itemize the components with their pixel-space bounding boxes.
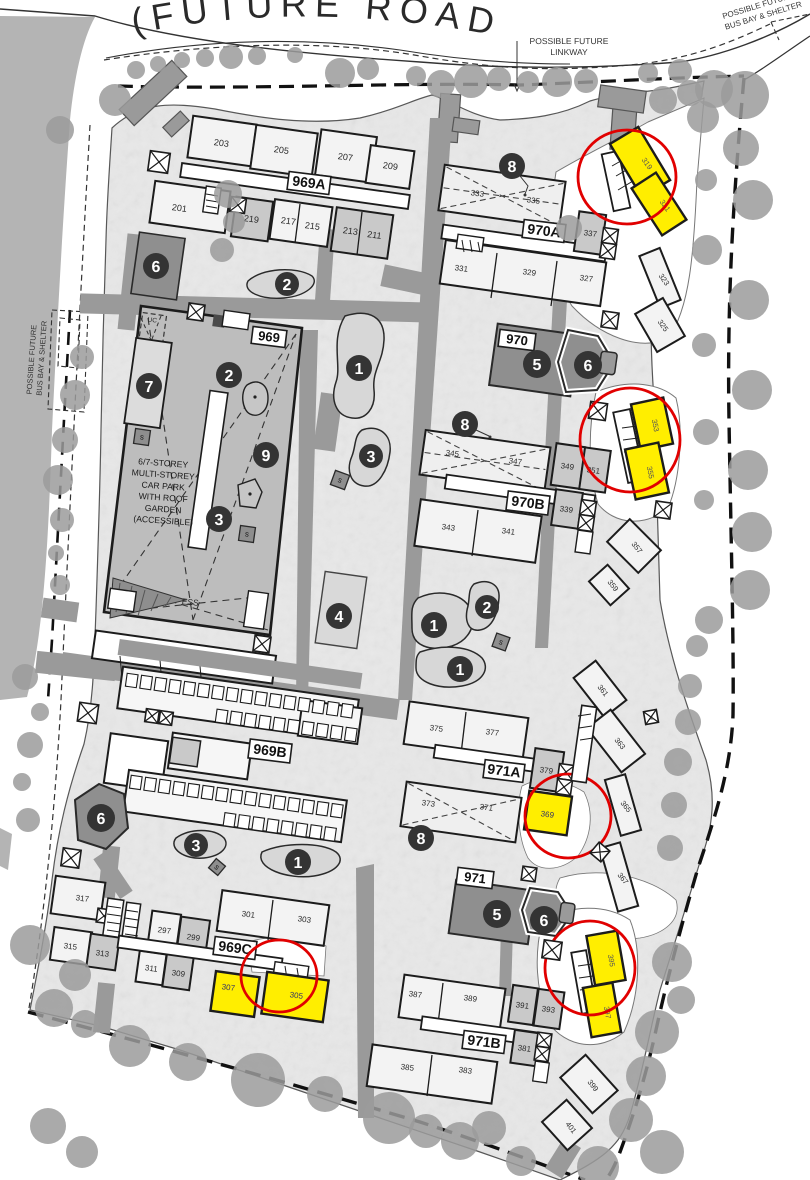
- svg-text:971: 971: [463, 869, 486, 887]
- svg-text:1: 1: [294, 855, 303, 872]
- svg-text:341: 341: [501, 526, 516, 537]
- svg-text:7: 7: [145, 379, 154, 396]
- svg-text:377: 377: [485, 727, 500, 738]
- svg-text:369: 369: [540, 809, 555, 820]
- svg-text:385: 385: [400, 1062, 415, 1073]
- svg-text:5: 5: [493, 907, 502, 924]
- svg-text:1: 1: [456, 662, 465, 679]
- svg-text:1: 1: [355, 361, 364, 378]
- svg-text:337: 337: [583, 228, 598, 239]
- svg-text:209: 209: [382, 160, 398, 172]
- svg-text:9: 9: [262, 448, 271, 465]
- svg-text:313: 313: [95, 948, 110, 959]
- svg-text:2: 2: [483, 600, 492, 617]
- svg-text:969: 969: [257, 328, 280, 346]
- svg-text:219: 219: [243, 213, 259, 225]
- svg-text:6: 6: [97, 811, 106, 828]
- svg-text:8: 8: [508, 159, 517, 176]
- svg-text:379: 379: [539, 765, 554, 776]
- svg-text:6: 6: [584, 358, 593, 375]
- svg-text:299: 299: [186, 932, 201, 943]
- svg-text:345: 345: [445, 448, 460, 459]
- svg-text:201: 201: [171, 202, 187, 214]
- svg-text:381: 381: [517, 1043, 532, 1054]
- svg-text:387: 387: [408, 989, 423, 1000]
- svg-text:UC: UC: [147, 316, 158, 324]
- svg-text:373: 373: [421, 798, 436, 809]
- svg-text:391: 391: [515, 1000, 530, 1011]
- svg-text:329: 329: [522, 267, 537, 278]
- svg-text:349: 349: [560, 461, 575, 472]
- svg-text:LINKWAY: LINKWAY: [550, 47, 588, 57]
- svg-text:213: 213: [342, 225, 358, 237]
- svg-text:393: 393: [541, 1004, 556, 1015]
- svg-text:311: 311: [144, 963, 158, 974]
- svg-text:970: 970: [505, 331, 528, 349]
- svg-text:303: 303: [297, 914, 312, 925]
- svg-text:205: 205: [273, 144, 289, 156]
- svg-text:339: 339: [559, 504, 574, 515]
- svg-text:307: 307: [221, 982, 236, 993]
- svg-text:389: 389: [463, 993, 478, 1004]
- svg-text:6: 6: [540, 913, 549, 930]
- svg-text:309: 309: [171, 968, 186, 979]
- svg-text:383: 383: [458, 1065, 473, 1076]
- svg-text:217: 217: [280, 215, 296, 227]
- svg-text:3: 3: [192, 838, 201, 855]
- svg-text:POSSIBLE FUTURE: POSSIBLE FUTURE: [530, 36, 609, 46]
- svg-text:317: 317: [75, 893, 90, 904]
- svg-text:301: 301: [241, 909, 256, 920]
- svg-text:347: 347: [508, 456, 523, 467]
- svg-text:327: 327: [579, 273, 594, 284]
- svg-text:297: 297: [157, 925, 172, 936]
- svg-text:6: 6: [152, 259, 161, 276]
- svg-text:3: 3: [215, 512, 224, 529]
- svg-text:335: 335: [526, 195, 541, 206]
- svg-text:5: 5: [533, 357, 542, 374]
- svg-text:x: x: [649, 715, 653, 722]
- svg-text:371: 371: [479, 802, 494, 813]
- svg-text:2: 2: [225, 368, 234, 385]
- svg-text:2: 2: [283, 277, 292, 294]
- svg-text:8: 8: [417, 831, 426, 848]
- svg-text:1: 1: [430, 618, 439, 635]
- svg-text:215: 215: [304, 220, 320, 232]
- svg-text:315: 315: [63, 941, 78, 952]
- svg-text:3: 3: [367, 449, 376, 466]
- svg-text:305: 305: [289, 990, 304, 1001]
- svg-text:375: 375: [429, 723, 444, 734]
- svg-text:343: 343: [441, 522, 456, 533]
- svg-text:203: 203: [213, 137, 229, 149]
- svg-text:207: 207: [337, 151, 353, 163]
- svg-text:211: 211: [367, 229, 383, 241]
- svg-text:4: 4: [335, 609, 344, 626]
- svg-text:331: 331: [454, 263, 469, 274]
- svg-text:ESS: ESS: [181, 596, 199, 608]
- svg-text:333: 333: [470, 188, 485, 199]
- svg-text:8: 8: [461, 417, 470, 434]
